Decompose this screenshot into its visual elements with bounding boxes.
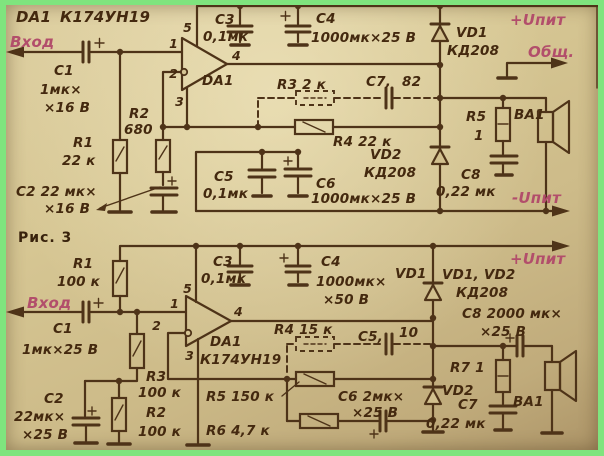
fig1-pin4: 4 [231, 48, 241, 63]
fig2-pin5: 5 [183, 281, 192, 296]
fig2-c5-label: C5, [358, 329, 383, 345]
fig1-c1-value2: ×16 В [44, 100, 90, 116]
fig1-r1-label: R1 [73, 135, 93, 151]
fig1-common-label: Общ. [528, 43, 574, 61]
fig2-pin4: 4 [233, 304, 243, 319]
fig2-pin1: 1 [170, 296, 179, 311]
fig1-c3-label: C3 [215, 12, 235, 28]
fig2-c7-label: C7 [458, 397, 478, 413]
fig2-opamp-part: К174УН19 [200, 352, 281, 368]
fig2-c8-value: C8 2000 мк× [462, 306, 562, 322]
fig2-c4-value2: ×50 В [323, 292, 369, 308]
fig2-c1-label: C1 [53, 321, 73, 337]
fig2-r3-value: 100 к [138, 385, 182, 401]
fig2-r1-label: R1 [73, 256, 93, 272]
fig1-pin3: 3 [175, 94, 184, 109]
fig2-c4-label: C4 [321, 254, 341, 270]
figure-caption: Рис. 3 [18, 230, 72, 246]
fig2-speaker-cone [560, 351, 576, 401]
fig2-vd2-diode [425, 389, 441, 404]
green-photo-frame: DA1 К174УН19 Вход 5 1 2 3 4 DA1 C1 1мк× … [0, 0, 604, 456]
fig1-input-label: Вход [10, 33, 54, 51]
fig2-r7-value: R7 1 [450, 360, 485, 376]
fig2-vd1-diode [425, 285, 441, 300]
fig2-vd-pair-label: VD1, VD2 [442, 267, 516, 283]
fig1-c8-label: C8 [461, 167, 481, 183]
fig2-r1-value: 100 к [57, 274, 101, 290]
fig2-r6-value: R6 4,7 к [206, 423, 271, 439]
fig1-r2-value: 680 [124, 122, 153, 138]
fig2-r4-value: R4 15 к [274, 322, 333, 338]
fig2-c6-value2: ×25 В [352, 405, 398, 421]
fig1-title-part: К174УН19 [60, 8, 150, 26]
fig2-r2-label: R2 [146, 405, 166, 421]
fig1-c7-value: 82 [402, 74, 421, 90]
fig1-c2-value: C2 22 мк× [16, 184, 97, 200]
fig2-pin2: 2 [152, 318, 161, 333]
fig2-speaker-body [545, 362, 560, 390]
fig2-r5-value: R5 150 к [206, 389, 275, 405]
fig1-vd1-label: VD1 [456, 25, 488, 41]
fig1-pin1: 1 [169, 36, 178, 51]
fig2-r3-label: R3 [146, 369, 166, 385]
fig2-r2-resistor [112, 398, 126, 431]
fig2-opamp-ref: DA1 [210, 334, 242, 350]
fig2-r3-resistor [130, 334, 144, 368]
fig2-c5-value: 10 [399, 325, 418, 341]
fig1-c3-value: 0,1мк [203, 29, 249, 45]
fig1-r5-value: 1 [474, 128, 484, 144]
fig1-vd1-type: КД208 [447, 43, 499, 59]
fig1-c1-value: 1мк× [40, 82, 82, 98]
fig1-c1-label: C1 [54, 63, 74, 79]
fig2-c4-value: 1000мк× [316, 274, 386, 290]
fig2-vd1-label: VD1 [395, 266, 427, 282]
fig1-r3-value: R3 2 к [277, 77, 327, 93]
fig1-c5-label: C5 [214, 169, 234, 185]
fig1-r2-resistor [156, 140, 170, 172]
schematic-photo: DA1 К174УН19 Вход 5 1 2 3 4 DA1 C1 1мк× … [6, 5, 598, 450]
fig1-neg-rail-label: -Uпит [512, 189, 562, 207]
fig2-r1-resistor [113, 261, 127, 296]
fig2-r2-value: 100 к [138, 424, 182, 440]
fig1-c8-value: 0,22 мк [436, 184, 496, 200]
fig2-c2-label: C2 [44, 391, 64, 407]
fig1-c5-value: 0,1мк [203, 186, 249, 202]
fig1-pin5: 5 [183, 20, 192, 35]
fig2-vd-type: КД208 [456, 285, 508, 301]
fig2-pin3: 3 [185, 348, 194, 363]
fig2-input-label: Вход [27, 294, 71, 312]
fig1-neg-rail-arrow [552, 206, 570, 217]
fig2-c7-value: 0,22 мк [426, 416, 486, 432]
fig1-pin2: 2 [169, 66, 178, 81]
fig1-pos-rail-label: +Uпит [510, 11, 566, 29]
fig1-c2-value2: ×16 В [44, 201, 90, 217]
schematic-canvas: DA1 К174УН19 Вход 5 1 2 3 4 DA1 C1 1мк× … [6, 5, 598, 450]
fig1-opamp-label: DA1 [202, 73, 234, 89]
fig2-c6-value: C6 2мк× [338, 389, 404, 405]
fig2-c8-value2: ×25 В [480, 324, 526, 340]
fig1-r2-label: R2 [129, 106, 149, 122]
fig1-vd1-diode [432, 26, 448, 41]
fig1-r5-label: R5 [466, 109, 486, 125]
fig2-c2-value2: ×25 В [22, 427, 68, 443]
fig2-pos-rail-label: +Uпит [510, 250, 566, 268]
fig1-c6-label: C6 [316, 176, 336, 192]
fig1-c4-label: C4 [316, 11, 336, 27]
fig1-vd2-type: КД208 [364, 165, 416, 181]
fig1-r1-resistor [113, 140, 127, 173]
fig2-ba1-label: BA1 [513, 394, 544, 410]
fig2-c2-value: 22мк× [14, 409, 65, 425]
fig1-ba1-label: BA1 [514, 107, 545, 123]
fig1-c6-value: 1000мк×25 В [311, 191, 416, 207]
fig1-title-ref: DA1 [16, 8, 51, 26]
fig1-vd2-label: VD2 [370, 147, 402, 163]
fig2-c1-value: 1мк×25 В [22, 342, 98, 358]
fig2-c3-label: C3 [213, 254, 233, 270]
fig1-c4-value: 1000мк×25 В [311, 30, 416, 46]
fig1-c7-label: C7, [366, 74, 391, 90]
fig1-labels: DA1 К174УН19 Вход 5 1 2 3 4 DA1 C1 1мк× … [10, 8, 574, 217]
fig1-r1-value: 22 к [62, 153, 96, 169]
fig2-c3-value: 0,1мк [201, 271, 247, 287]
fig1-vd2-diode [432, 149, 448, 164]
fig1-speaker-cone [553, 101, 569, 153]
